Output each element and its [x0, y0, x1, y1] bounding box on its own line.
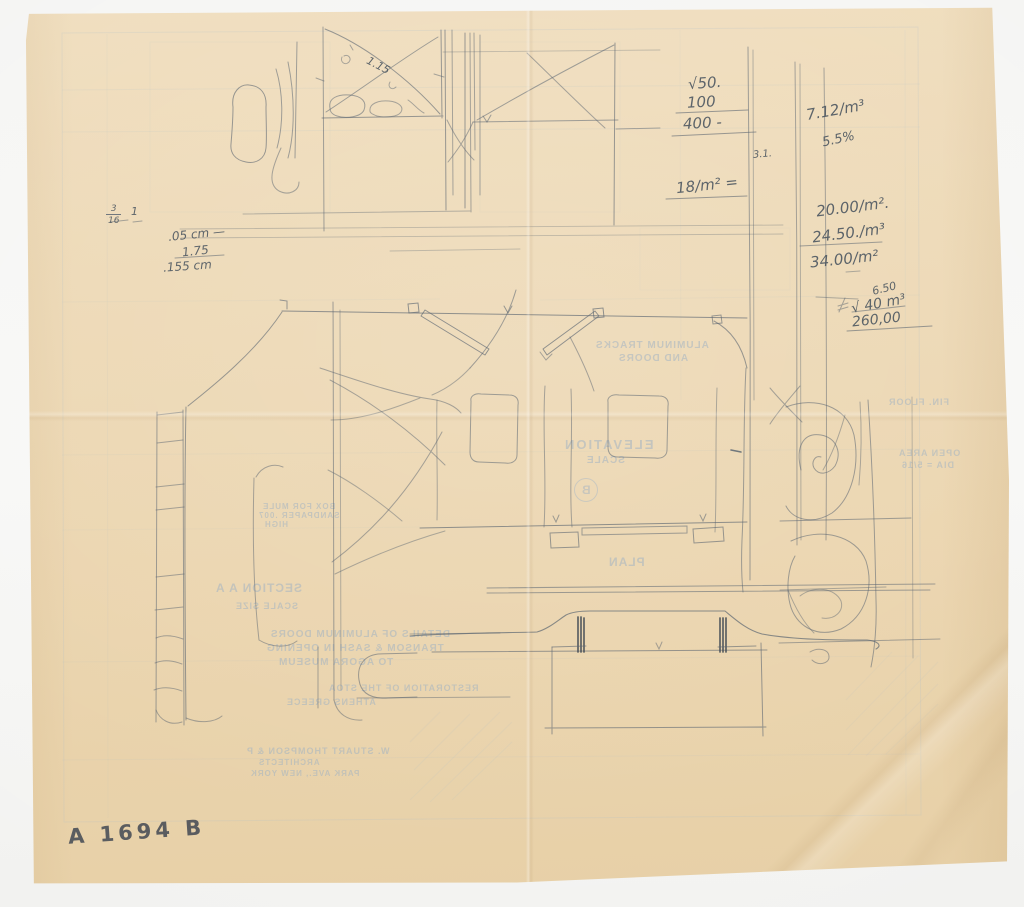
calc-31: 3.1. — [753, 149, 773, 161]
calc-05cm: .05 cm — — [168, 225, 226, 243]
scanned-sheet-stage: ALUMINUM TRACKS AND DOORS ELEVATION SCAL… — [0, 0, 1024, 907]
calc-3400-per-m2: 34.00/m² — [809, 248, 879, 270]
calc-100: 100 — [687, 94, 716, 110]
calc-sqrt50: √50. — [688, 75, 722, 92]
fraction-numerator: 3 — [106, 204, 121, 214]
calc-55-pct: 5.5% — [821, 130, 856, 150]
inventory-number: A 1694 B — [67, 817, 205, 848]
calc-2450-per-m3: 24.50./m³ — [811, 222, 886, 246]
calc-18-per-m2: 18/m² = — [675, 175, 738, 196]
calc-2000-per-m2: 20.00/m². — [815, 196, 890, 220]
calc-712-per-m3: 7.12/m³ — [805, 98, 866, 123]
calc-fraction-3-16: 3 16 — [106, 204, 121, 226]
fraction-denominator: 16 — [106, 214, 121, 226]
tracing-paper-sheet: ALUMINUM TRACKS AND DOORS ELEVATION SCAL… — [24, 6, 1010, 886]
calc-260: 260,00 — [851, 310, 901, 329]
dim-115-diagonal: 1.15 — [365, 55, 392, 76]
annotations-layer: √50. 100 400 - 7.12/m³ 5.5% 3.1. 18/m² =… — [0, 0, 1024, 907]
calc-175: 1.75 — [181, 244, 209, 259]
calc-155cm: .155 cm — [163, 258, 213, 273]
calc-one: 1 — [131, 206, 138, 217]
calc-400: 400 - — [683, 115, 723, 132]
